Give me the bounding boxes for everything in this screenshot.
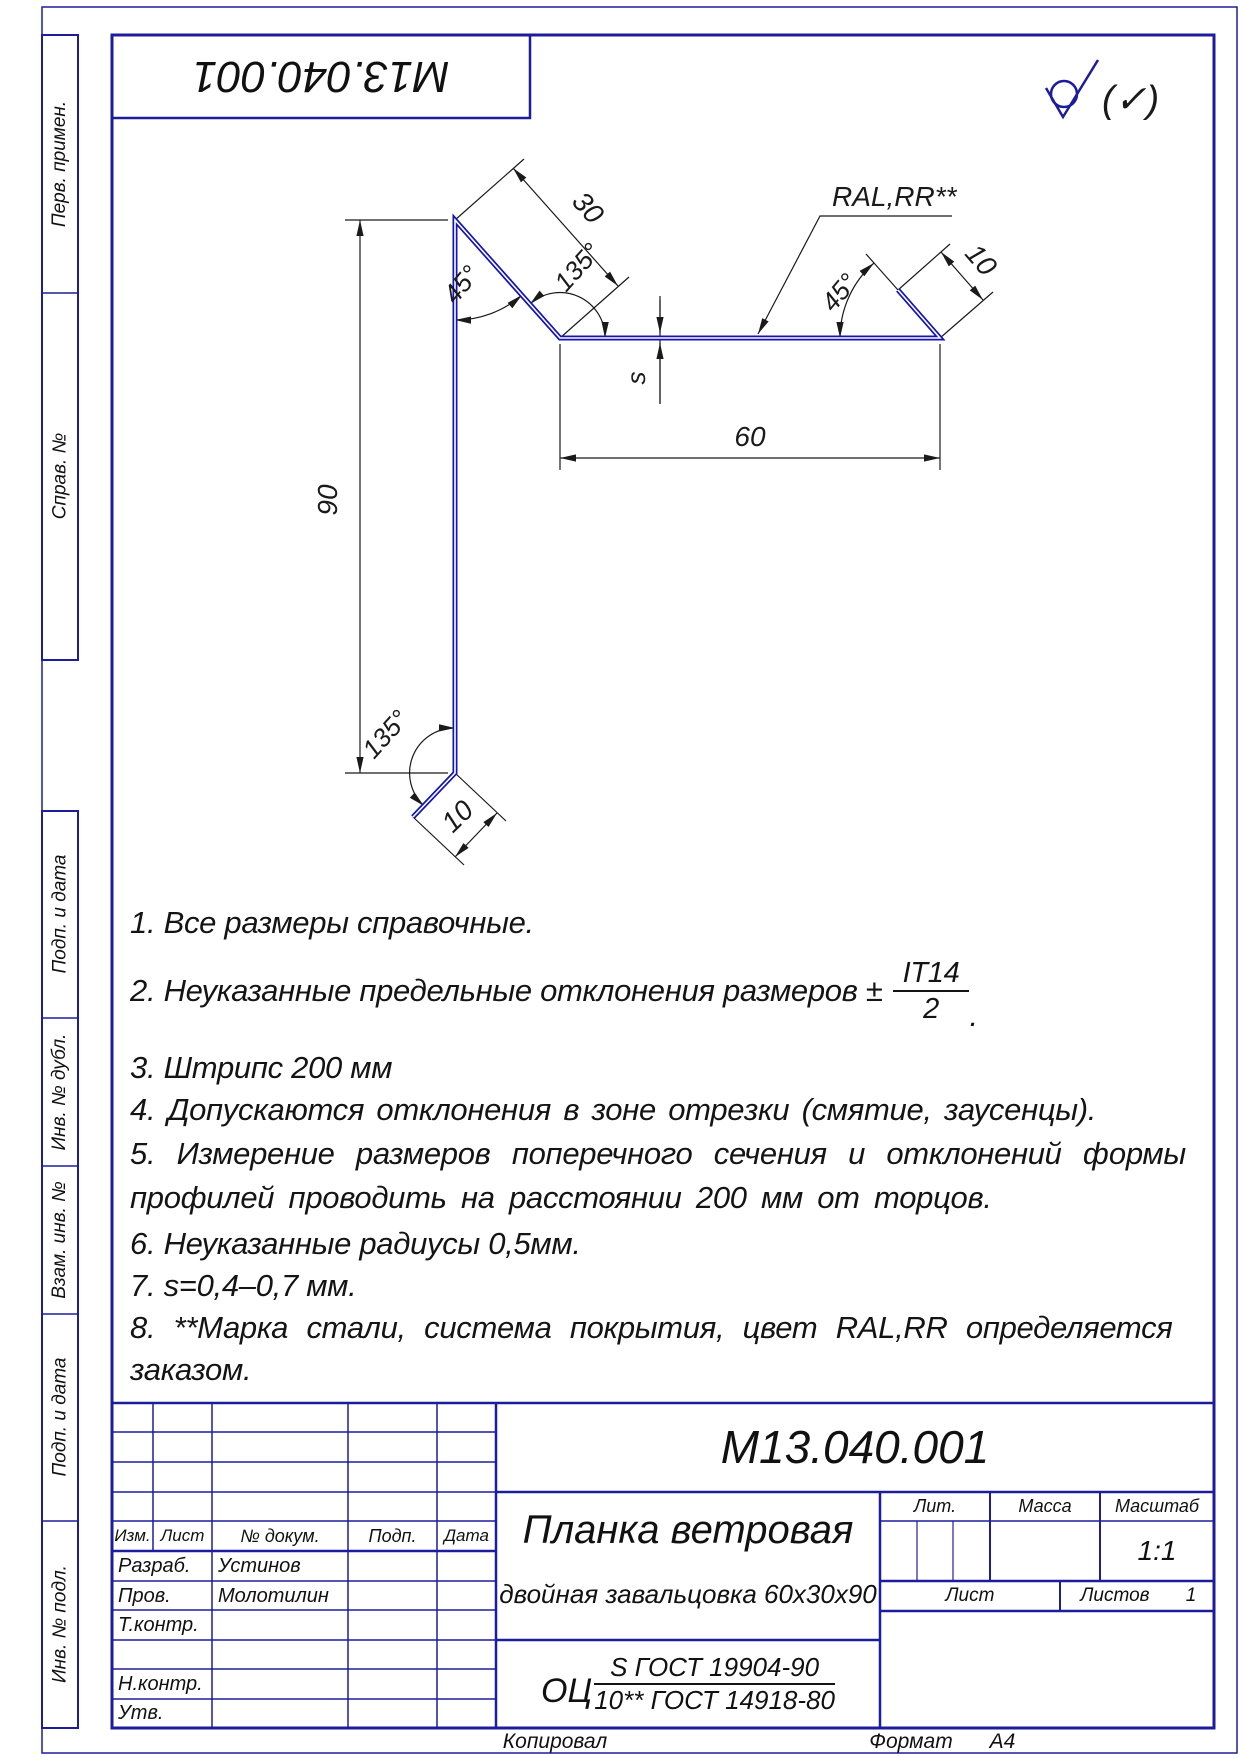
- side-label-vzam-inv: Взам. инв. №: [42, 1166, 78, 1314]
- dim-10-right-label: 10: [959, 238, 1003, 282]
- part-name-subtitle: двойная завальцовка 60х30х90: [498, 1566, 878, 1622]
- col-header-doc: № докум.: [212, 1521, 348, 1551]
- dim-60-label: 60: [734, 421, 766, 452]
- side-label-sprav-no: Справ. №: [43, 293, 79, 660]
- roughness-circle-icon: [1051, 81, 1077, 107]
- material-prefix: ОЦ: [541, 1672, 592, 1711]
- note-1: 1. Все размеры справочные.: [130, 905, 534, 941]
- note-2-text: 2. Неуказанные предельные отклонения раз…: [130, 973, 883, 1009]
- material-gost-top: S ГОСТ 19904-90: [594, 1654, 835, 1685]
- material-fraction: S ГОСТ 19904-90 10** ГОСТ 14918-80: [594, 1654, 835, 1715]
- listov-value: 1: [1168, 1581, 1214, 1611]
- drawing-sheet: { "colors": { "frame_blue": "#1d1d9c", "…: [0, 0, 1244, 1758]
- dimension-lines: [345, 159, 993, 865]
- angle-45-left-label: 45°: [437, 260, 485, 309]
- dim-30-label: 30: [566, 186, 610, 230]
- note-3: 3. Штрипс 200 мм: [130, 1050, 392, 1086]
- part-name: Планка ветровая: [498, 1498, 878, 1562]
- profile-outline: [413, 220, 940, 817]
- roughness-symbol: (✓): [1046, 60, 1159, 121]
- row-name-prov: Молотилин: [218, 1581, 329, 1611]
- note-2-fraction: IT14 2: [893, 958, 970, 1025]
- col-header-izm: Изм.: [112, 1521, 153, 1551]
- note-2-fraction-top: IT14: [893, 958, 970, 992]
- row-label-utv: Утв.: [118, 1699, 163, 1728]
- note-4: 4. Допускаются отклонения в зоне отрезки…: [130, 1092, 1096, 1128]
- dim-10-bottom-label: 10: [435, 794, 479, 838]
- roughness-note: (✓): [1102, 79, 1159, 121]
- side-label-podp-data-2: Подп. и дата: [43, 1314, 79, 1521]
- lit-header: Лит.: [880, 1492, 990, 1521]
- masshtab-header: Масштаб: [1100, 1492, 1214, 1521]
- angle-45-right-label: 45°: [815, 268, 863, 317]
- note-2-fraction-bottom: 2: [893, 992, 970, 1024]
- note-2: 2. Неуказанные предельные отклонения раз…: [130, 948, 978, 1034]
- list-label: Лист: [880, 1581, 1060, 1611]
- note-8-line2: заказом.: [130, 1352, 251, 1388]
- side-label-inv-dubl: Инв. № дубл.: [42, 1018, 78, 1166]
- side-label-perv-primen: Перв. примен.: [42, 35, 78, 293]
- note-2-period: .: [969, 998, 977, 1034]
- col-header-podp: Подп.: [348, 1521, 437, 1551]
- material-cell: ОЦ S ГОСТ 19904-90 10** ГОСТ 14918-80: [498, 1640, 878, 1728]
- note-8-line1: 8. **Марка стали, система покрытия, цвет…: [130, 1310, 1173, 1346]
- side-label-inv-podl: Инв. № подл.: [43, 1521, 79, 1728]
- row-label-tkontr: Т.контр.: [118, 1610, 199, 1640]
- col-header-list: Лист: [153, 1521, 212, 1551]
- note-6: 6. Неуказанные радиусы 0,5мм.: [130, 1226, 581, 1262]
- doc-number: М13.040.001: [496, 1403, 1214, 1492]
- top-stamp-code: М13.040.001: [112, 35, 530, 118]
- row-name-razrab: Устинов: [218, 1551, 301, 1581]
- col-header-data: Дата: [437, 1521, 496, 1551]
- row-label-razrab: Разраб.: [118, 1551, 190, 1581]
- dim-90-label: 90: [312, 484, 343, 516]
- material-gost-bottom: 10** ГОСТ 14918-80: [594, 1685, 835, 1714]
- listov-label: Листов: [1060, 1581, 1170, 1611]
- angle-135-top-label: 135°: [548, 237, 606, 297]
- thickness-label: s: [621, 372, 651, 385]
- format-value: А4: [975, 1729, 1030, 1755]
- dimension-labels: 90 30 45° 135° s 60 RAL,RR** 45° 10 135°…: [312, 181, 1003, 838]
- angle-135-bottom-label: 135°: [356, 704, 414, 764]
- coating-label: RAL,RR**: [832, 181, 958, 212]
- note-5-line1: 5. Измерение размеров поперечного сечени…: [130, 1136, 1186, 1172]
- massa-header: Масса: [990, 1492, 1100, 1521]
- scale-value: 1:1: [1100, 1521, 1214, 1581]
- side-label-podp-data-1: Подп. и дата: [43, 811, 79, 1018]
- roughness-check-icon: [1046, 60, 1098, 117]
- row-label-nkontr: Н.контр.: [118, 1669, 203, 1699]
- kopiroval-label: Копировал: [440, 1729, 670, 1755]
- note-5-line2: профилей проводить на расстоянии 200 мм …: [130, 1180, 992, 1216]
- format-label: Формат: [856, 1729, 966, 1755]
- note-7: 7. s=0,4–0,7 мм.: [130, 1268, 356, 1304]
- row-label-prov: Пров.: [118, 1581, 171, 1611]
